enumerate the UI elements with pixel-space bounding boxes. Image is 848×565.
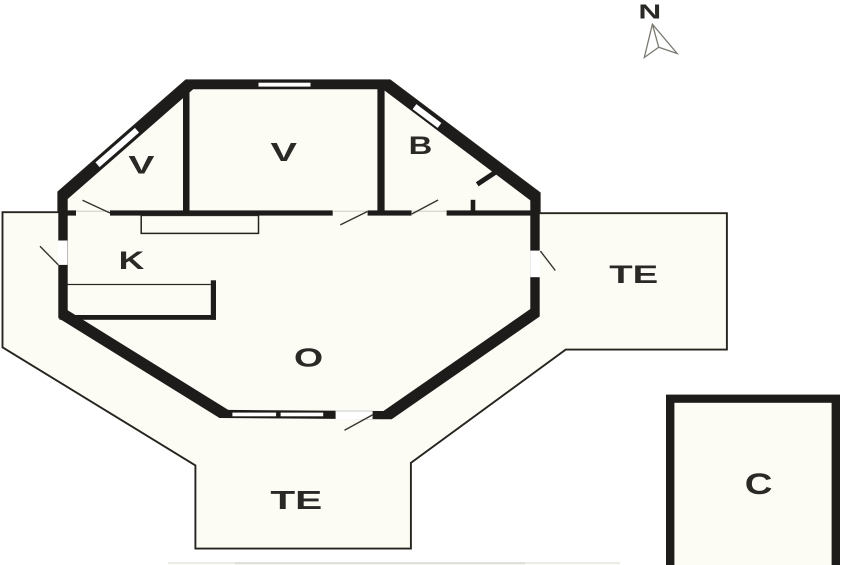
svg-text:TE: TE [270,486,322,515]
svg-text:N: N [638,0,661,23]
svg-text:C: C [745,468,773,501]
svg-text:B: B [409,133,433,161]
svg-text:V: V [270,139,297,167]
svg-text:TE: TE [609,261,658,289]
svg-text:K: K [119,247,145,274]
svg-text:O: O [294,343,323,372]
svg-text:V: V [128,151,154,179]
